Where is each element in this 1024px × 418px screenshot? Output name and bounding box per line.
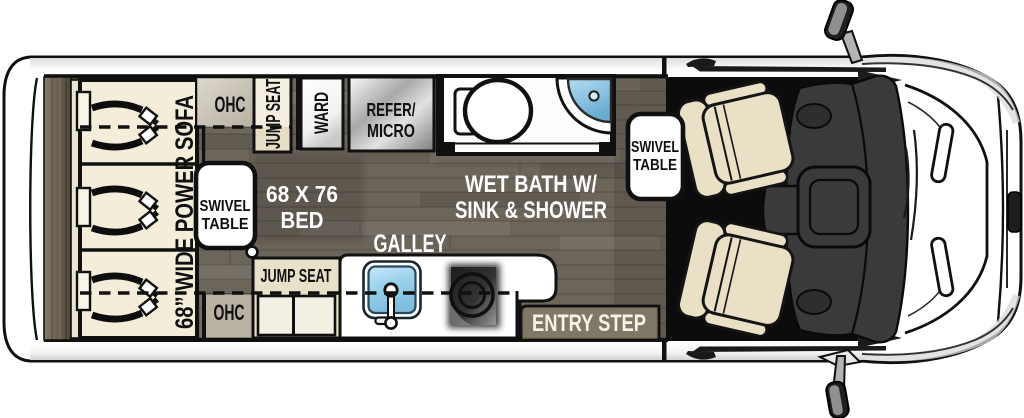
svg-text:SWIVEL: SWIVEL xyxy=(631,139,679,156)
svg-text:OHC: OHC xyxy=(214,300,245,325)
svg-text:REFER/: REFER/ xyxy=(367,99,416,120)
svg-text:WET BATH W/: WET BATH W/ xyxy=(465,171,597,198)
svg-text:WARD: WARD xyxy=(312,92,333,134)
svg-text:BED: BED xyxy=(281,207,324,233)
svg-text:SINK & SHOWER: SINK & SHOWER xyxy=(455,197,607,224)
svg-text:JUMP SEAT: JUMP SEAT xyxy=(261,266,332,286)
svg-text:ENTRY STEP: ENTRY STEP xyxy=(532,310,646,337)
svg-text:MICRO: MICRO xyxy=(367,120,415,141)
svg-text:SWIVEL: SWIVEL xyxy=(200,198,251,215)
svg-text:68 X 76: 68 X 76 xyxy=(266,181,338,207)
svg-text:GALLEY: GALLEY xyxy=(374,230,447,258)
svg-text:TABLE: TABLE xyxy=(202,216,249,233)
svg-text:OHC: OHC xyxy=(215,92,246,117)
svg-text:TABLE: TABLE xyxy=(633,157,677,174)
svg-text:JUMP SEAT: JUMP SEAT xyxy=(263,79,285,149)
